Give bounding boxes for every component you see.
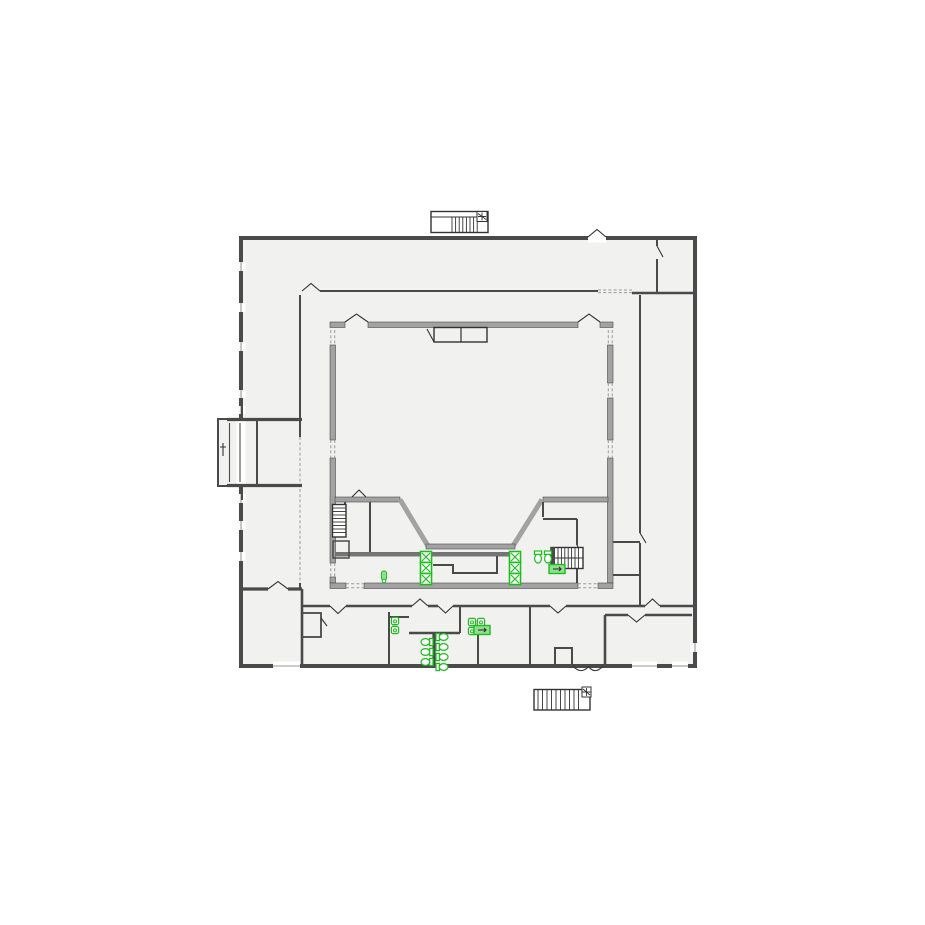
toilet-symbol	[421, 658, 433, 665]
shaft-symbol	[510, 574, 521, 585]
toilet-symbol	[421, 638, 433, 645]
drain-symbol	[381, 571, 386, 583]
stair-inner-southwest	[333, 505, 347, 538]
accbox-symbol	[474, 626, 490, 635]
sink-symbol	[391, 626, 398, 633]
shaft-symbol	[421, 552, 432, 563]
stair-top-exterior	[431, 212, 488, 233]
shaft-symbol	[421, 563, 432, 574]
sink-symbol	[391, 617, 398, 624]
toilet-symbol	[421, 648, 433, 655]
toilet-symbol	[534, 551, 541, 563]
stair-bottom-exterior	[534, 687, 591, 710]
toilet-symbol	[544, 551, 551, 563]
sink-symbol	[468, 618, 475, 625]
accbox-symbol	[549, 565, 565, 574]
toilet-symbol	[436, 643, 448, 650]
shaft-symbol	[510, 563, 521, 574]
floor-plan-drawing	[0, 0, 925, 925]
sink-symbol	[477, 618, 484, 625]
floor-fill	[218, 238, 696, 667]
floor-plan-canvas	[0, 0, 925, 925]
shaft-symbol	[510, 552, 521, 563]
hall-vestibule	[427, 328, 487, 343]
toilet-symbol	[436, 663, 448, 670]
toilet-symbol	[436, 653, 448, 660]
shaft-symbol	[421, 574, 432, 585]
toilet-symbol	[436, 633, 448, 640]
